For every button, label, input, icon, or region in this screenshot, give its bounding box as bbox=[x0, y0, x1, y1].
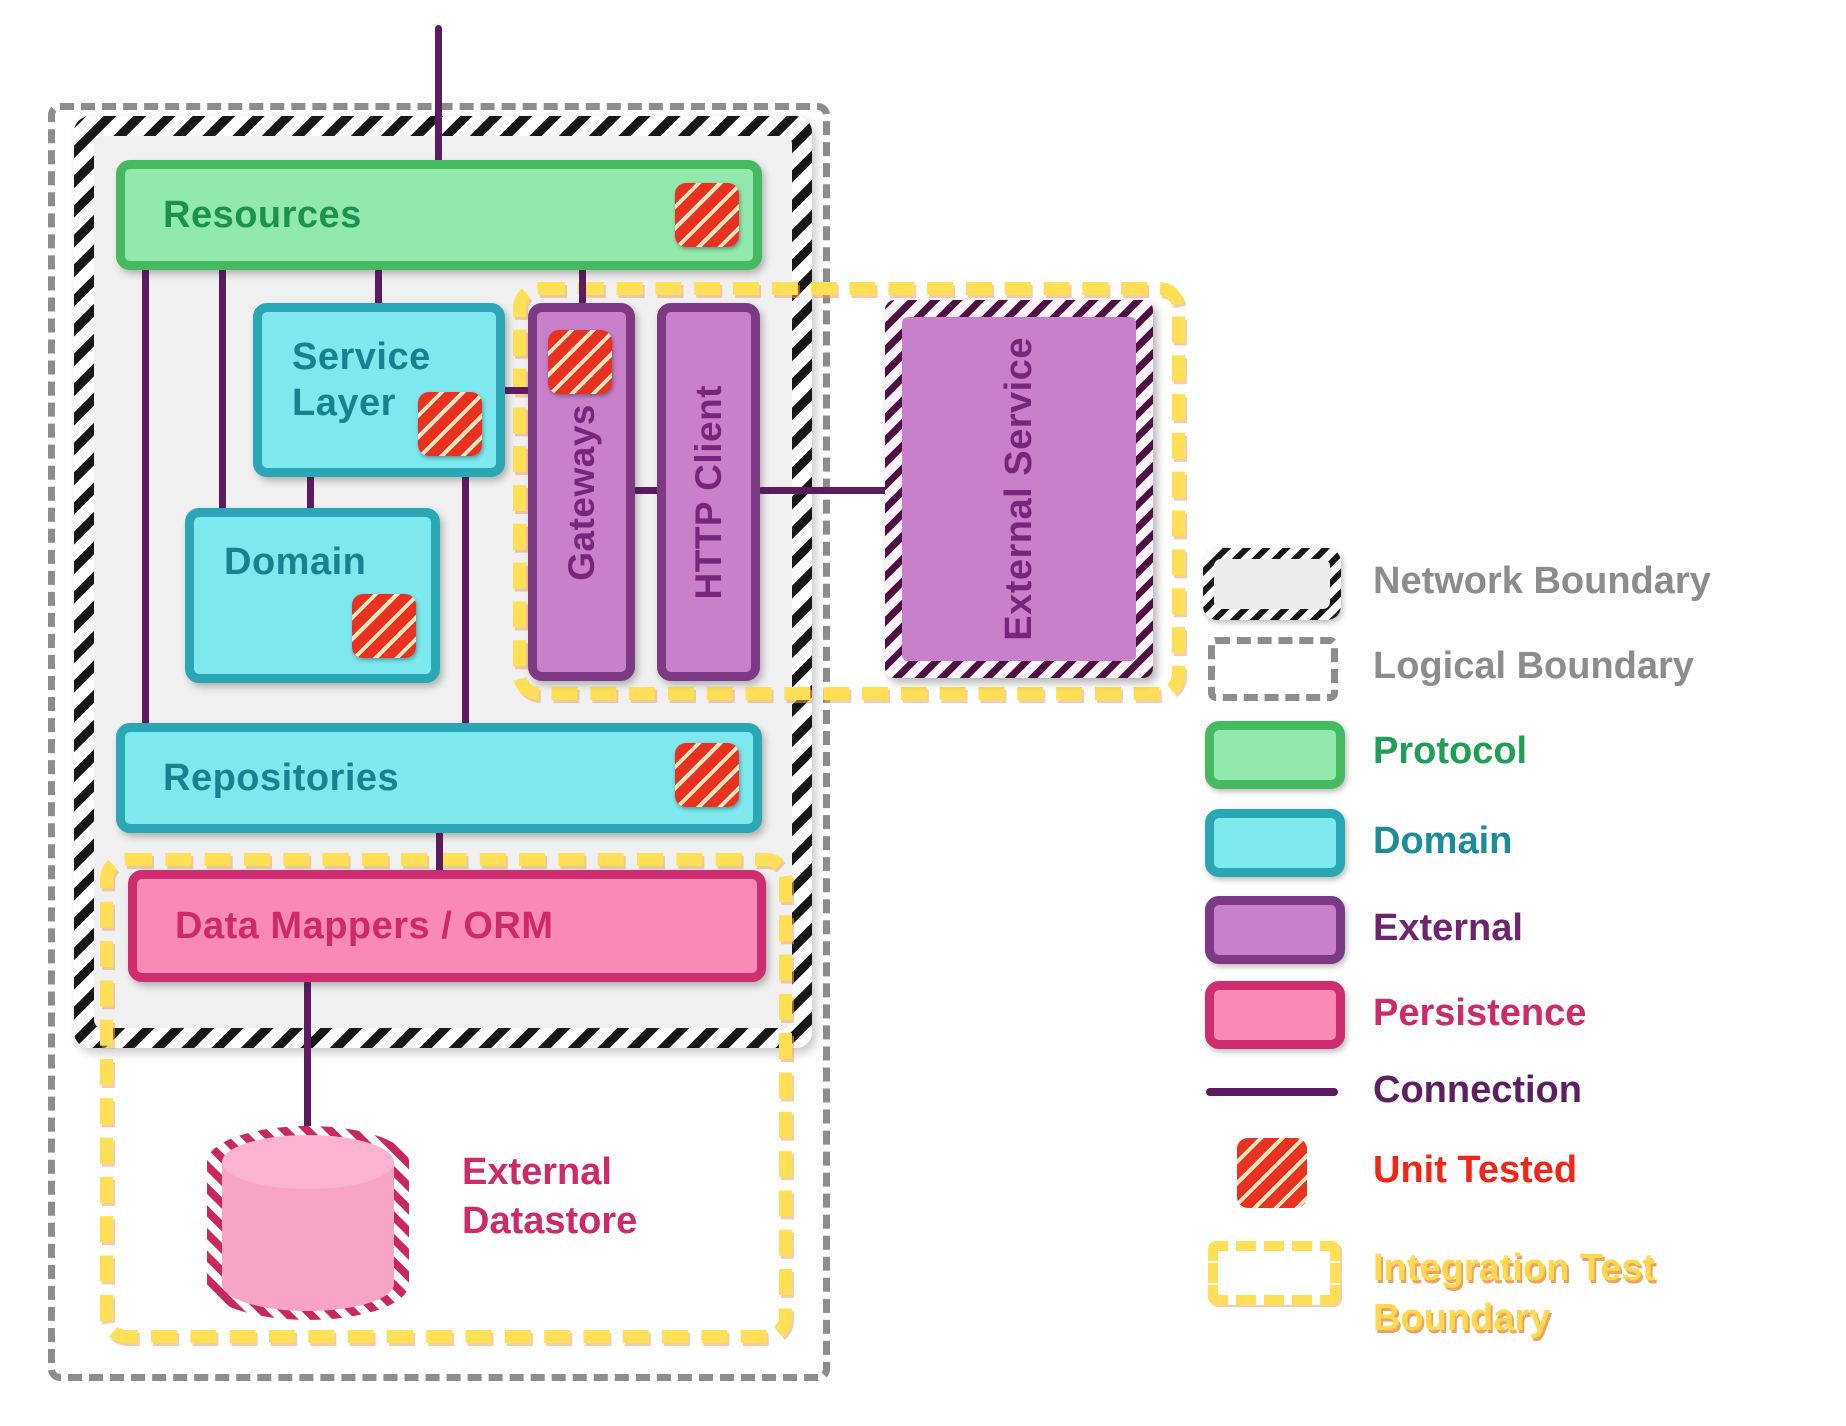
legend-swatch-external bbox=[1205, 896, 1345, 964]
unit-tested-badge bbox=[675, 183, 739, 247]
connection-line bbox=[758, 487, 888, 494]
legend-swatch-protocol bbox=[1205, 721, 1345, 789]
node-resources: Resources bbox=[116, 160, 762, 270]
node-resources-label: Resources bbox=[163, 194, 362, 237]
legend-swatch-connection bbox=[1206, 1088, 1338, 1096]
connection-line bbox=[579, 268, 586, 306]
legend-swatch-integration-test-boundary bbox=[1208, 1241, 1340, 1305]
legend-swatch-network-boundary bbox=[1203, 548, 1341, 620]
legend-label-network-boundary: Network Boundary bbox=[1373, 560, 1711, 603]
node-gateways-label: Gateways bbox=[561, 404, 603, 581]
connection-line bbox=[142, 268, 149, 728]
connection-line bbox=[307, 474, 314, 511]
node-repositories-label: Repositories bbox=[163, 757, 399, 800]
unit-tested-badge bbox=[418, 392, 482, 456]
legend-swatch-domain bbox=[1205, 809, 1345, 877]
legend-label-protocol: Protocol bbox=[1373, 730, 1527, 773]
node-external-service-fill: External Service bbox=[902, 317, 1136, 661]
legend-swatch-logical-boundary bbox=[1208, 637, 1338, 701]
node-external-service: External Service bbox=[885, 300, 1153, 678]
node-external-service-label: External Service bbox=[998, 337, 1041, 641]
connection-line bbox=[462, 474, 469, 728]
node-http-client-label: HTTP Client bbox=[688, 385, 730, 600]
legend-label-domain: Domain bbox=[1373, 820, 1512, 863]
connection-line bbox=[435, 25, 442, 165]
legend-label-integration-test-boundary: Integration Test Boundary bbox=[1373, 1243, 1843, 1343]
legend-swatch-network-boundary-fill bbox=[1214, 559, 1330, 609]
unit-tested-badge bbox=[352, 594, 416, 658]
node-http-client: HTTP Client bbox=[657, 303, 760, 681]
node-data-mappers-label: Data Mappers / ORM bbox=[175, 905, 554, 948]
connection-line bbox=[633, 487, 660, 494]
connection-line bbox=[304, 980, 311, 1143]
legend-label-persistence: Persistence bbox=[1373, 992, 1586, 1035]
diagram-canvas: Resources Service Layer Domain Gateways … bbox=[0, 0, 1846, 1426]
database-cylinder-icon bbox=[203, 1122, 413, 1322]
unit-tested-badge bbox=[675, 743, 739, 807]
legend-swatch-persistence bbox=[1205, 981, 1345, 1049]
node-domain-label: Domain bbox=[194, 517, 431, 585]
legend-label-connection: Connection bbox=[1373, 1069, 1582, 1112]
unit-tested-badge bbox=[548, 330, 612, 394]
legend-label-external: External bbox=[1373, 907, 1523, 950]
node-repositories: Repositories bbox=[116, 723, 762, 833]
connection-line bbox=[375, 268, 382, 306]
connection-line bbox=[219, 268, 226, 511]
legend-label-logical-boundary: Logical Boundary bbox=[1373, 645, 1694, 688]
external-datastore-label: External Datastore bbox=[462, 1148, 702, 1247]
connection-line bbox=[436, 830, 443, 875]
legend-swatch-unit-tested bbox=[1237, 1138, 1307, 1208]
node-data-mappers: Data Mappers / ORM bbox=[128, 870, 766, 982]
legend-label-unit-tested: Unit Tested bbox=[1373, 1149, 1577, 1192]
